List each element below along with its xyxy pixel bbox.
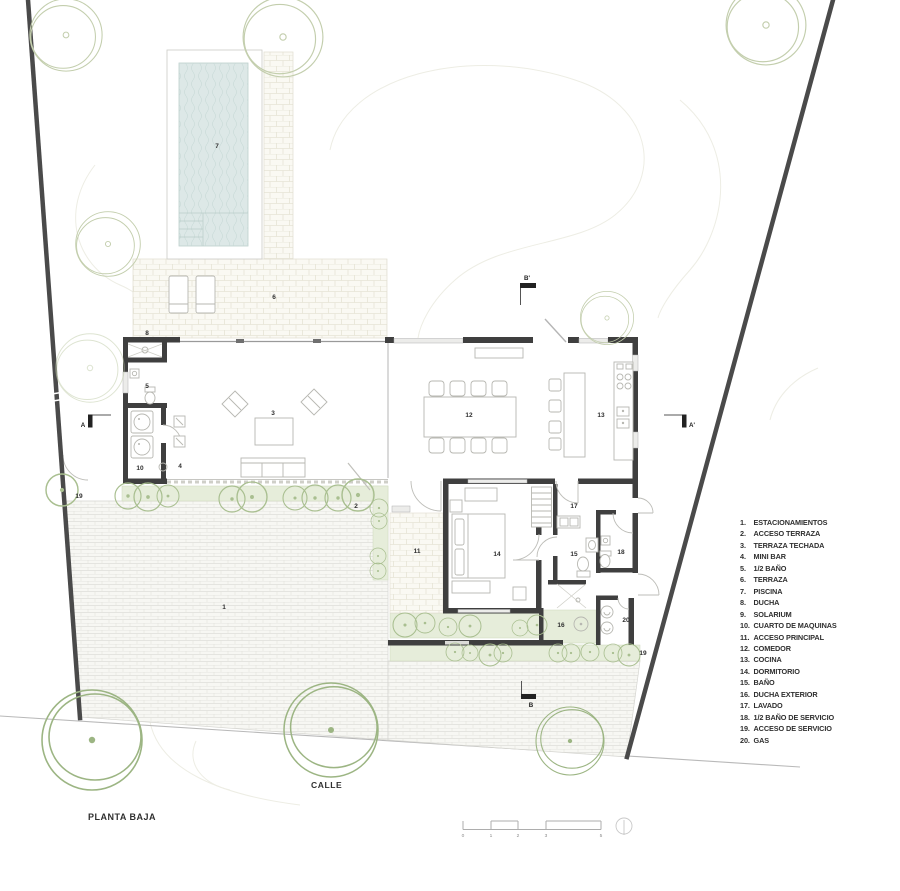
- north-indicator-icon: [616, 818, 632, 835]
- svg-text:0: 0: [462, 833, 465, 839]
- legend-item: 3.TERRAZA TECHADA: [740, 540, 837, 551]
- section-a: A: [81, 415, 111, 430]
- floor-plan-sheet: 7 6 8 5 10 4 3 12 13 14 11 17 15 18 16 2…: [0, 0, 900, 891]
- tree-icon: [726, 0, 806, 65]
- section-a-prime: A': [664, 415, 695, 430]
- svg-text:1: 1: [490, 833, 493, 839]
- svg-text:5: 5: [600, 833, 603, 839]
- label-cuarto-maquinas: 10: [136, 465, 144, 472]
- label-terraza-techada: 3: [271, 410, 275, 417]
- label-bano-servicio: 18: [617, 549, 625, 556]
- label-piscina: 7: [215, 143, 219, 150]
- label-lavado: 17: [570, 503, 578, 510]
- legend-item: 6.TERRAZA: [740, 574, 837, 585]
- legend-item: 17.LAVADO: [740, 700, 837, 711]
- label-acceso-servicio-der: 19: [639, 650, 647, 657]
- closet-shelves: [532, 487, 552, 527]
- legend-item: 10.CUARTO DE MAQUINAS: [740, 620, 837, 631]
- pool: [167, 50, 262, 259]
- svg-text:2: 2: [517, 833, 520, 839]
- legend-item: 9.SOLARIUM: [740, 609, 837, 620]
- tree-icon: [580, 291, 633, 344]
- svg-text:B': B': [524, 275, 530, 282]
- drawing-title: PLANTA BAJA: [88, 812, 156, 822]
- svg-text:A': A': [689, 422, 695, 429]
- svg-text:A: A: [81, 422, 86, 429]
- legend-item: 13.COCINA: [740, 654, 837, 665]
- legend-item: 20.GAS: [740, 735, 837, 746]
- label-bano: 15: [570, 551, 578, 558]
- label-dormitorio: 14: [493, 551, 501, 558]
- svg-text:B: B: [529, 702, 534, 709]
- legend-item: 8.DUCHA: [740, 597, 837, 608]
- scale-bar: 0 1 2 3 5: [462, 821, 603, 839]
- label-acceso-servicio-izq: 19: [75, 493, 83, 500]
- label-terraza: 6: [272, 294, 276, 301]
- entrance-sill: [392, 506, 410, 512]
- legend-item: 7.PISCINA: [740, 586, 837, 597]
- legend-item: 11.ACCESO PRINCIPAL: [740, 632, 837, 643]
- floor-plan-canvas: 7 6 8 5 10 4 3 12 13 14 11 17 15 18 16 2…: [0, 0, 900, 891]
- legend-item: 4.MINI BAR: [740, 551, 837, 562]
- legend-item: 19.ACCESO DE SERVICIO: [740, 723, 837, 734]
- legend-item: 2.ACCESO TERRAZA: [740, 528, 837, 539]
- label-ducha-exterior: 16: [557, 622, 565, 629]
- outdoor-shower-floor: [543, 610, 596, 643]
- legend-item: 14.DORMITORIO: [740, 666, 837, 677]
- entrance-path: [390, 513, 443, 613]
- label-ducha: 8: [145, 330, 149, 337]
- svg-text:3: 3: [545, 833, 548, 839]
- label-medio-bano: 5: [145, 383, 149, 390]
- legend: 1.ESTACIONAMIENTOS 2.ACCESO TERRAZA 3.TE…: [740, 517, 837, 746]
- legend-item: 1.ESTACIONAMIENTOS: [740, 517, 837, 528]
- tree-icon: [76, 212, 141, 277]
- section-b-prime: B': [520, 275, 536, 305]
- legend-item: 16.DUCHA EXTERIOR: [740, 689, 837, 700]
- label-cocina: 13: [597, 412, 605, 419]
- label-comedor: 12: [465, 412, 473, 419]
- label-acceso-terraza: 2: [354, 503, 358, 510]
- label-estacionamientos: 1: [222, 604, 226, 611]
- legend-item: 18.1/2 BAÑO DE SERVICIO: [740, 712, 837, 723]
- label-gas: 20: [622, 617, 630, 624]
- pool-brick-strip: [264, 52, 293, 259]
- legend-item: 5.1/2 BAÑO: [740, 563, 837, 574]
- tree-icon: [56, 334, 124, 402]
- legend-item: 12.COMEDOR: [740, 643, 837, 654]
- street-label: CALLE: [311, 780, 342, 790]
- label-mini-bar: 4: [178, 463, 182, 470]
- tree-icon: [30, 0, 102, 71]
- label-acceso-principal: 11: [414, 548, 421, 555]
- legend-item: 15.BAÑO: [740, 677, 837, 688]
